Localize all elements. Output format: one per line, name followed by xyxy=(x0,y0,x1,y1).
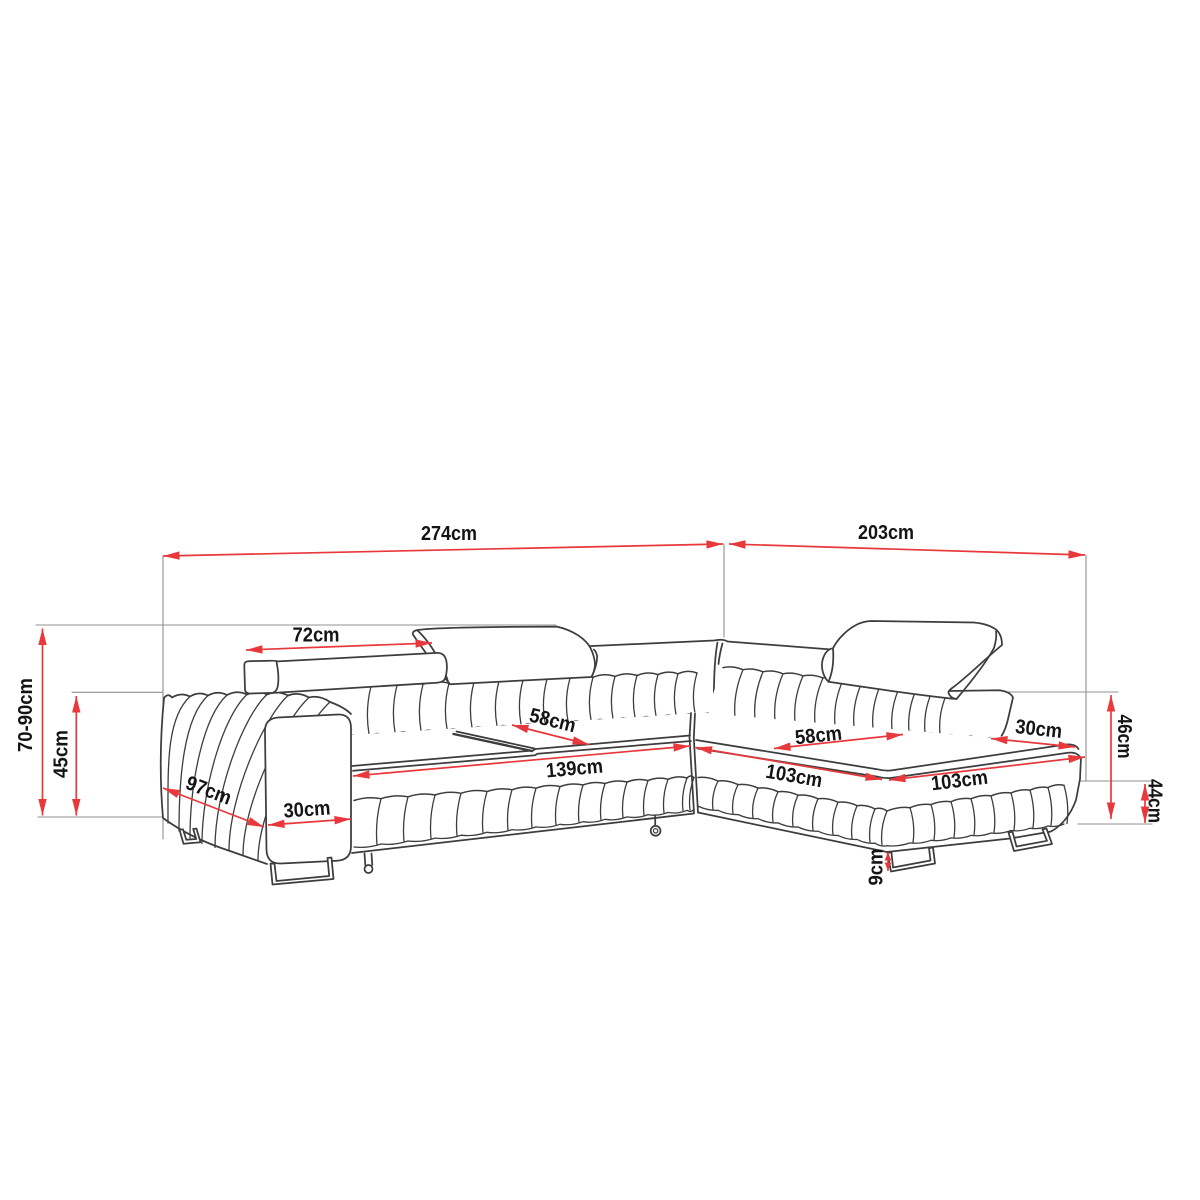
svg-text:44cm: 44cm xyxy=(1144,779,1166,823)
svg-text:70-90cm: 70-90cm xyxy=(15,678,37,752)
svg-text:46cm: 46cm xyxy=(1113,715,1135,759)
svg-text:30cm: 30cm xyxy=(283,797,331,822)
svg-text:45cm: 45cm xyxy=(51,730,73,778)
svg-text:203cm: 203cm xyxy=(858,522,914,544)
svg-text:72cm: 72cm xyxy=(293,625,340,647)
svg-text:274cm: 274cm xyxy=(421,523,477,545)
svg-text:9cm: 9cm xyxy=(866,849,888,886)
